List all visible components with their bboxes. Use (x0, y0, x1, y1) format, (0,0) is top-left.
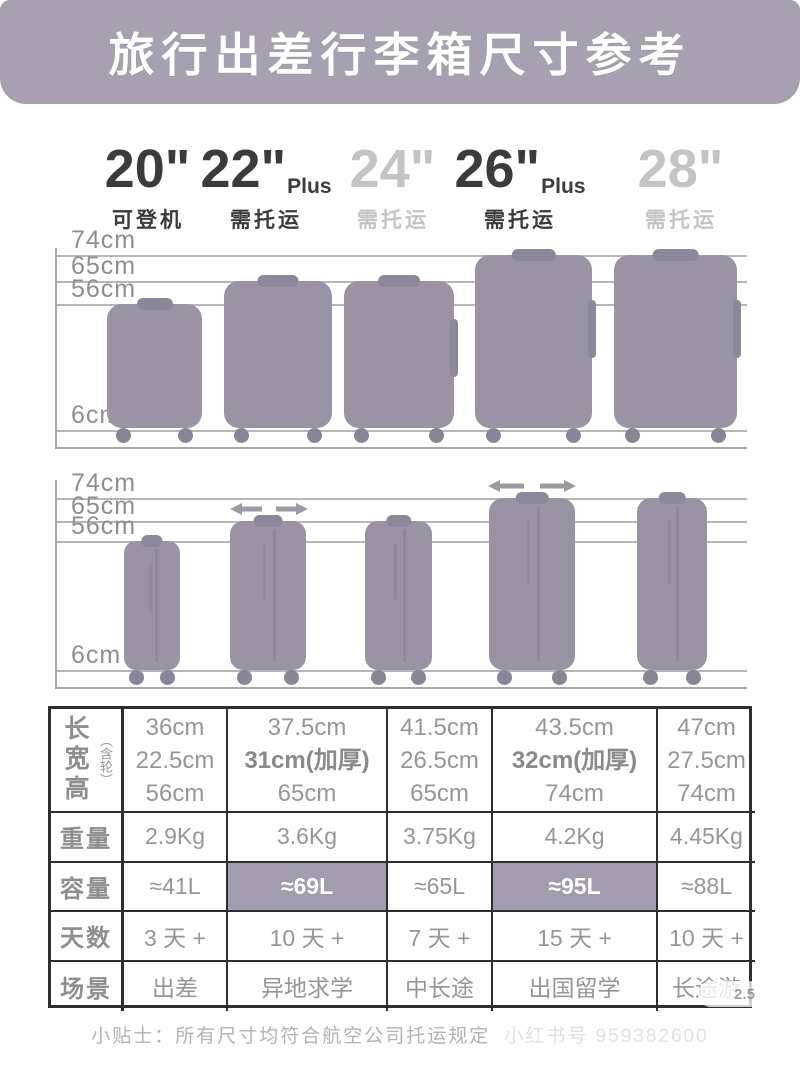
size-number-text: 20" (105, 139, 191, 199)
size-number: 22"Plus (200, 142, 331, 196)
luggage-22plus-side-illustration (230, 521, 306, 670)
size-number-text: 22" (200, 139, 286, 199)
weight-cell-28: 4.45Kg (658, 813, 755, 863)
dim-height: 65cm (410, 777, 469, 810)
size-header-24: 24" 需托运 (350, 142, 437, 234)
dim-length: 36cm (146, 711, 205, 744)
capacity-cell-24: ≈65L (388, 863, 493, 913)
luggage-26plus-front-illustration (475, 255, 592, 428)
row-header-capacity: 容量 (51, 863, 124, 913)
dim-height: 74cm (677, 777, 736, 810)
luggage-wheel (234, 428, 249, 443)
size-header-26plus: 26"Plus 需托运 (454, 142, 585, 234)
dim-height: 74cm (545, 777, 604, 810)
luggage-wheel (411, 670, 426, 685)
weight-cell-24: 3.75Kg (388, 813, 493, 863)
capacity-cell-22plus-highlighted: ≈69L (228, 863, 388, 913)
luggage-handle (511, 249, 555, 261)
luggage-wheel (566, 428, 581, 443)
luggage-handle (652, 249, 699, 261)
luggage-size-infographic: 旅行出差行李箱尺寸参考 20" 可登机 22"Plus 需托运 24" 需托运 … (0, 0, 800, 1067)
luggage-rod (394, 543, 397, 600)
size-number-text: 28" (638, 139, 724, 199)
size-number: 24" (350, 142, 437, 196)
luggage-28-side-illustration (637, 498, 707, 670)
luggage-handle (257, 275, 298, 287)
luggage-handle (254, 515, 283, 527)
luggage-wheel (160, 670, 175, 685)
size-plus-suffix: Plus (287, 176, 331, 197)
luggage-rod (263, 543, 266, 600)
days-cell-22plus: 10 天 + (228, 912, 388, 962)
luggage-seam (273, 529, 276, 662)
title-banner: 旅行出差行李箱尺寸参考 (0, 0, 800, 104)
scene-cell-26plus: 出国留学 (493, 962, 658, 1012)
luggage-wheel (178, 428, 193, 443)
dim-width: 26.5cm (400, 744, 479, 777)
tick-56cm: 56cm (71, 275, 136, 304)
height-chart-side-view: 74cm 65cm 56cm 6cm (55, 480, 747, 689)
luggage-side-handle (588, 300, 596, 358)
dims-cell-26plus: 43.5cm32cm(加厚)74cm (493, 709, 658, 813)
size-header-20: 20" 可登机 (105, 142, 192, 234)
size-number-text: 24" (350, 139, 436, 199)
dim-length: 43.5cm (535, 711, 614, 744)
size-number: 20" (105, 142, 192, 196)
days-cell-26plus: 15 天 + (493, 912, 658, 962)
luggage-seam (537, 506, 540, 662)
capacity-cell-26plus-highlighted: ≈95L (493, 863, 658, 913)
luggage-handle (386, 515, 411, 527)
row-header-days: 天数 (51, 912, 124, 962)
size-number-text: 26" (454, 139, 540, 199)
luggage-wheel (371, 670, 386, 685)
weight-cell-26plus: 4.2Kg (493, 813, 658, 863)
capacity-cell-20: ≈41L (124, 863, 228, 913)
luggage-wheel (552, 670, 567, 685)
luggage-handle (136, 298, 172, 310)
dim-width: 22.5cm (136, 744, 215, 777)
size-number: 28" (638, 142, 725, 196)
dims-cell-20: 36cm22.5cm56cm (124, 709, 228, 813)
dims-cell-24: 41.5cm26.5cm65cm (388, 709, 493, 813)
dim-width: 31cm(加厚) (244, 744, 369, 777)
luggage-wheel (284, 670, 299, 685)
days-cell-20: 3 天 + (124, 912, 228, 962)
row-header-dims-main: 长宽高 (57, 715, 93, 805)
luggage-26plus-side-illustration (489, 498, 575, 670)
days-cell-24: 7 天 + (388, 912, 493, 962)
luggage-handle (141, 535, 162, 547)
luggage-22plus-front-illustration (224, 281, 332, 428)
luggage-28-front-illustration (614, 255, 737, 428)
size-label: 需托运 (638, 204, 725, 234)
tick-6cm: 6cm (71, 641, 121, 670)
size-header-22plus: 22"Plus 需托运 (200, 142, 331, 234)
dim-height: 56cm (146, 777, 205, 810)
luggage-seam (676, 506, 679, 662)
dim-width: 27.5cm (667, 744, 746, 777)
luggage-rod (149, 563, 152, 612)
scene-cell-20: 出差 (124, 962, 228, 1012)
luggage-wheel (307, 428, 322, 443)
row-header-weight: 重量 (51, 813, 124, 863)
tick-56cm: 56cm (71, 512, 136, 541)
luggage-wheel (686, 670, 701, 685)
luggage-wheel (711, 428, 726, 443)
luggage-wheel (116, 428, 131, 443)
expand-arrows-icon (487, 479, 577, 493)
size-label: 需托运 (200, 204, 331, 234)
watermark-text: 小红书号 959382600 (504, 1021, 708, 1048)
row-header-dims-sub: （含轮） (96, 734, 115, 786)
luggage-handle (659, 492, 686, 504)
row-header-dimensions: 长宽高 （含轮） (51, 709, 124, 813)
weight-cell-20: 2.9Kg (124, 813, 228, 863)
luggage-wheel (354, 428, 369, 443)
luggage-rod (527, 520, 530, 585)
luggage-wheel (129, 670, 144, 685)
luggage-handle (378, 275, 420, 287)
dim-length: 41.5cm (400, 711, 479, 744)
height-chart-front-view: 74cm 65cm 56cm 6cm (55, 248, 747, 449)
watermark-badge: 2.5 (698, 981, 762, 1007)
row-header-scene: 场景 (51, 962, 124, 1012)
spec-table: 长宽高 （含轮） 36cm22.5cm56cm 37.5cm31cm(加厚)65… (48, 706, 752, 1008)
page-title: 旅行出差行李箱尺寸参考 (109, 19, 692, 85)
gridline-6cm: 6cm (57, 670, 747, 672)
size-label: 需托运 (350, 204, 437, 234)
gridline-6cm: 6cm (57, 430, 747, 432)
weight-cell-22plus: 3.6Kg (228, 813, 388, 863)
capacity-cell-28: ≈88L (658, 863, 755, 913)
size-plus-suffix: Plus (541, 176, 585, 197)
dims-cell-28: 47cm27.5cm74cm (658, 709, 755, 813)
footer: 小贴士：所有尺寸均符合航空公司托运规定 小红书号 959382600 (0, 1021, 800, 1048)
luggage-wheel (429, 428, 444, 443)
luggage-seam (403, 529, 406, 662)
luggage-wheel (497, 670, 512, 685)
dim-length: 37.5cm (268, 711, 347, 744)
luggage-side-handle (450, 319, 458, 377)
size-label: 需托运 (454, 204, 585, 234)
dim-width: 32cm(加厚) (512, 744, 637, 777)
luggage-wheel (643, 670, 658, 685)
dim-length: 47cm (677, 711, 736, 744)
expand-arrows-icon (229, 502, 309, 516)
size-number: 26"Plus (454, 142, 585, 196)
days-cell-28: 10 天 + (658, 912, 755, 962)
scene-cell-22plus: 异地求学 (228, 962, 388, 1012)
luggage-20-side-illustration (124, 541, 180, 670)
dims-cell-22plus: 37.5cm31cm(加厚)65cm (228, 709, 388, 813)
size-header-28: 28" 需托运 (638, 142, 725, 234)
tick-74cm: 74cm (71, 226, 136, 255)
luggage-seam (155, 549, 158, 662)
luggage-wheel (486, 428, 501, 443)
luggage-20-front-illustration (107, 304, 202, 428)
luggage-24-side-illustration (365, 521, 432, 670)
luggage-wheel (237, 670, 252, 685)
dim-height: 65cm (278, 777, 337, 810)
luggage-handle (516, 492, 549, 504)
luggage-wheel (625, 428, 640, 443)
footnote-text: 小贴士：所有尺寸均符合航空公司托运规定 (91, 1021, 490, 1048)
luggage-24-front-illustration (344, 281, 454, 428)
scene-cell-24: 中长途 (388, 962, 493, 1012)
luggage-side-handle (733, 300, 741, 358)
luggage-rod (668, 520, 671, 585)
